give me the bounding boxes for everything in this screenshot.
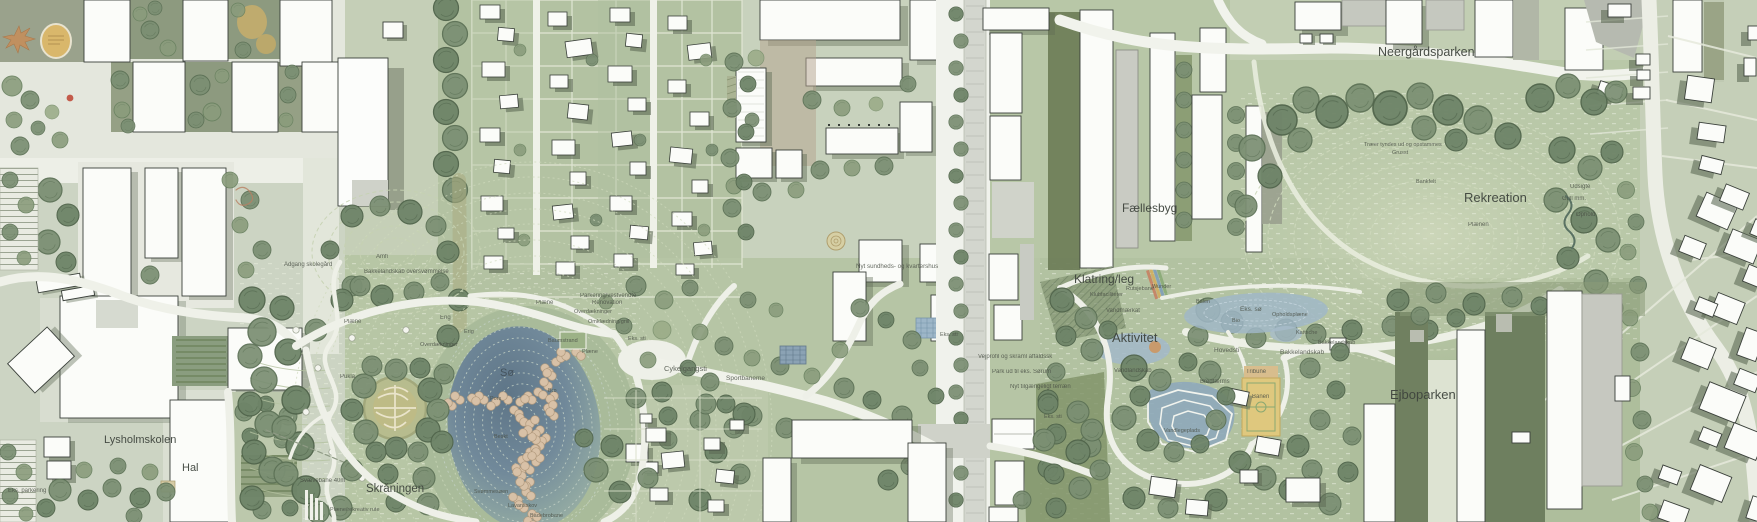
svg-text:Banen: Banen: [1252, 394, 1269, 400]
svg-text:Bankfelt: Bankfelt: [1416, 179, 1436, 185]
svg-text:Udsigte: Udsigte: [1570, 184, 1591, 190]
svg-text:Rutsjebane: Rutsjebane: [1126, 286, 1154, 292]
svg-text:Plæne: Plæne: [536, 300, 554, 306]
svg-text:Balen: Balen: [1196, 299, 1210, 305]
svg-text:Sportbaneme: Sportbaneme: [726, 375, 765, 382]
svg-text:Bio: Bio: [1232, 318, 1240, 324]
svg-text:Parkering/vestvendte: Parkering/vestvendte: [580, 293, 637, 299]
svg-text:Ophold: Ophold: [1576, 212, 1595, 218]
svg-text:Bakkelandskab oversvømmelse: Bakkelandskab oversvømmelse: [364, 269, 449, 275]
svg-text:Overdækninger: Overdækninger: [574, 309, 612, 315]
svg-text:Beskt: Beskt: [494, 434, 508, 440]
svg-text:Nyt tilgængeligt terræn: Nyt tilgængeligt terræn: [1010, 384, 1071, 390]
svg-text:Eng: Eng: [440, 315, 451, 321]
svg-text:Svævebane 40m: Svævebane 40m: [300, 478, 345, 484]
svg-text:Sø: Sø: [500, 367, 514, 379]
svg-text:Vandmærkat: Vandmærkat: [1106, 308, 1140, 314]
svg-text:Neergårdsparken: Neergårdsparken: [1378, 45, 1475, 59]
svg-text:Ejboparken: Ejboparken: [1390, 387, 1456, 402]
svg-text:Eks. parkering: Eks. parkering: [8, 488, 46, 494]
svg-text:Cykelgangsti: Cykelgangsti: [664, 364, 707, 373]
svg-text:Overdækninger: Overdækninger: [420, 342, 458, 348]
svg-text:Eks. sti: Eks. sti: [940, 332, 958, 338]
svg-text:Vandlegeplads: Vandlegeplads: [1164, 428, 1200, 434]
svg-text:Plænen: Plænen: [1468, 222, 1489, 228]
svg-text:Plæne/rekreativ rute: Plæne/rekreativ rute: [330, 507, 380, 513]
svg-text:Klatring/leg: Klatring/leg: [1074, 272, 1134, 286]
svg-text:Erig: Erig: [464, 329, 474, 335]
svg-text:Træer tyndes ud og opstammes: Træer tyndes ud og opstammes: [1364, 142, 1442, 148]
svg-text:Eks. sti: Eks. sti: [628, 336, 646, 342]
svg-text:Aktivitet: Aktivitet: [1112, 330, 1158, 345]
svg-text:Pukla: Pukla: [340, 374, 356, 380]
svg-text:Bredfærms: Bredfærms: [1200, 379, 1230, 385]
svg-text:Hovedsti: Hovedsti: [1214, 347, 1239, 354]
svg-text:Lavansskov: Lavansskov: [508, 503, 537, 509]
svg-text:Bakkelandskab: Bakkelandskab: [1318, 340, 1355, 346]
svg-text:Bro: Bro: [548, 388, 557, 394]
svg-text:Plæne: Plæne: [344, 319, 362, 325]
svg-text:Amfi: Amfi: [376, 254, 388, 260]
svg-text:Vandlandskab: Vandlandskab: [1114, 368, 1152, 374]
svg-text:Kattsche: Kattsche: [1296, 330, 1317, 336]
svg-text:Klubfaciliteter: Klubfaciliteter: [1090, 292, 1123, 298]
svg-text:Grill mm.: Grill mm.: [1562, 196, 1586, 202]
svg-text:Eks. sø: Eks. sø: [1240, 306, 1262, 313]
svg-text:Bakkelandskab: Bakkelandskab: [1280, 349, 1324, 356]
svg-text:Lysholmskolen: Lysholmskolen: [104, 434, 176, 446]
svg-text:Eks. sti: Eks. sti: [1044, 414, 1062, 420]
svg-text:Skråningen: Skråningen: [366, 483, 424, 495]
svg-text:Vejprofil og skraml affaldssk: Vejprofil og skraml affaldssk: [978, 354, 1053, 360]
svg-text:Adgang skolegård: Adgang skolegård: [284, 261, 332, 268]
svg-text:Hal: Hal: [182, 462, 199, 474]
svg-text:Grusst: Grusst: [1392, 150, 1409, 156]
svg-text:Badebrobane: Badebrobane: [530, 513, 563, 519]
svg-text:Baumstrand: Baumstrand: [548, 338, 578, 344]
svg-text:Renovation: Renovation: [592, 300, 622, 306]
svg-text:Omklædning/grill: Omklædning/grill: [588, 319, 629, 325]
svg-text:Pors: Pors: [490, 396, 502, 402]
svg-text:Tribune: Tribune: [1246, 369, 1267, 375]
svg-text:Svømmesøen: Svømmesøen: [474, 489, 508, 495]
svg-text:Park ud til eks. Sørum: Park ud til eks. Sørum: [992, 369, 1051, 375]
svg-text:Fællesbyg: Fællesbyg: [1122, 201, 1177, 215]
svg-text:Opholdsplæne: Opholdsplæne: [1272, 312, 1308, 318]
svg-text:Plæne: Plæne: [582, 349, 598, 355]
svg-text:Wunder: Wunder: [1152, 284, 1171, 290]
svg-text:Nyt sundheds- og kvartershus: Nyt sundheds- og kvartershus: [856, 263, 938, 270]
svg-text:Rekreation: Rekreation: [1464, 190, 1527, 205]
